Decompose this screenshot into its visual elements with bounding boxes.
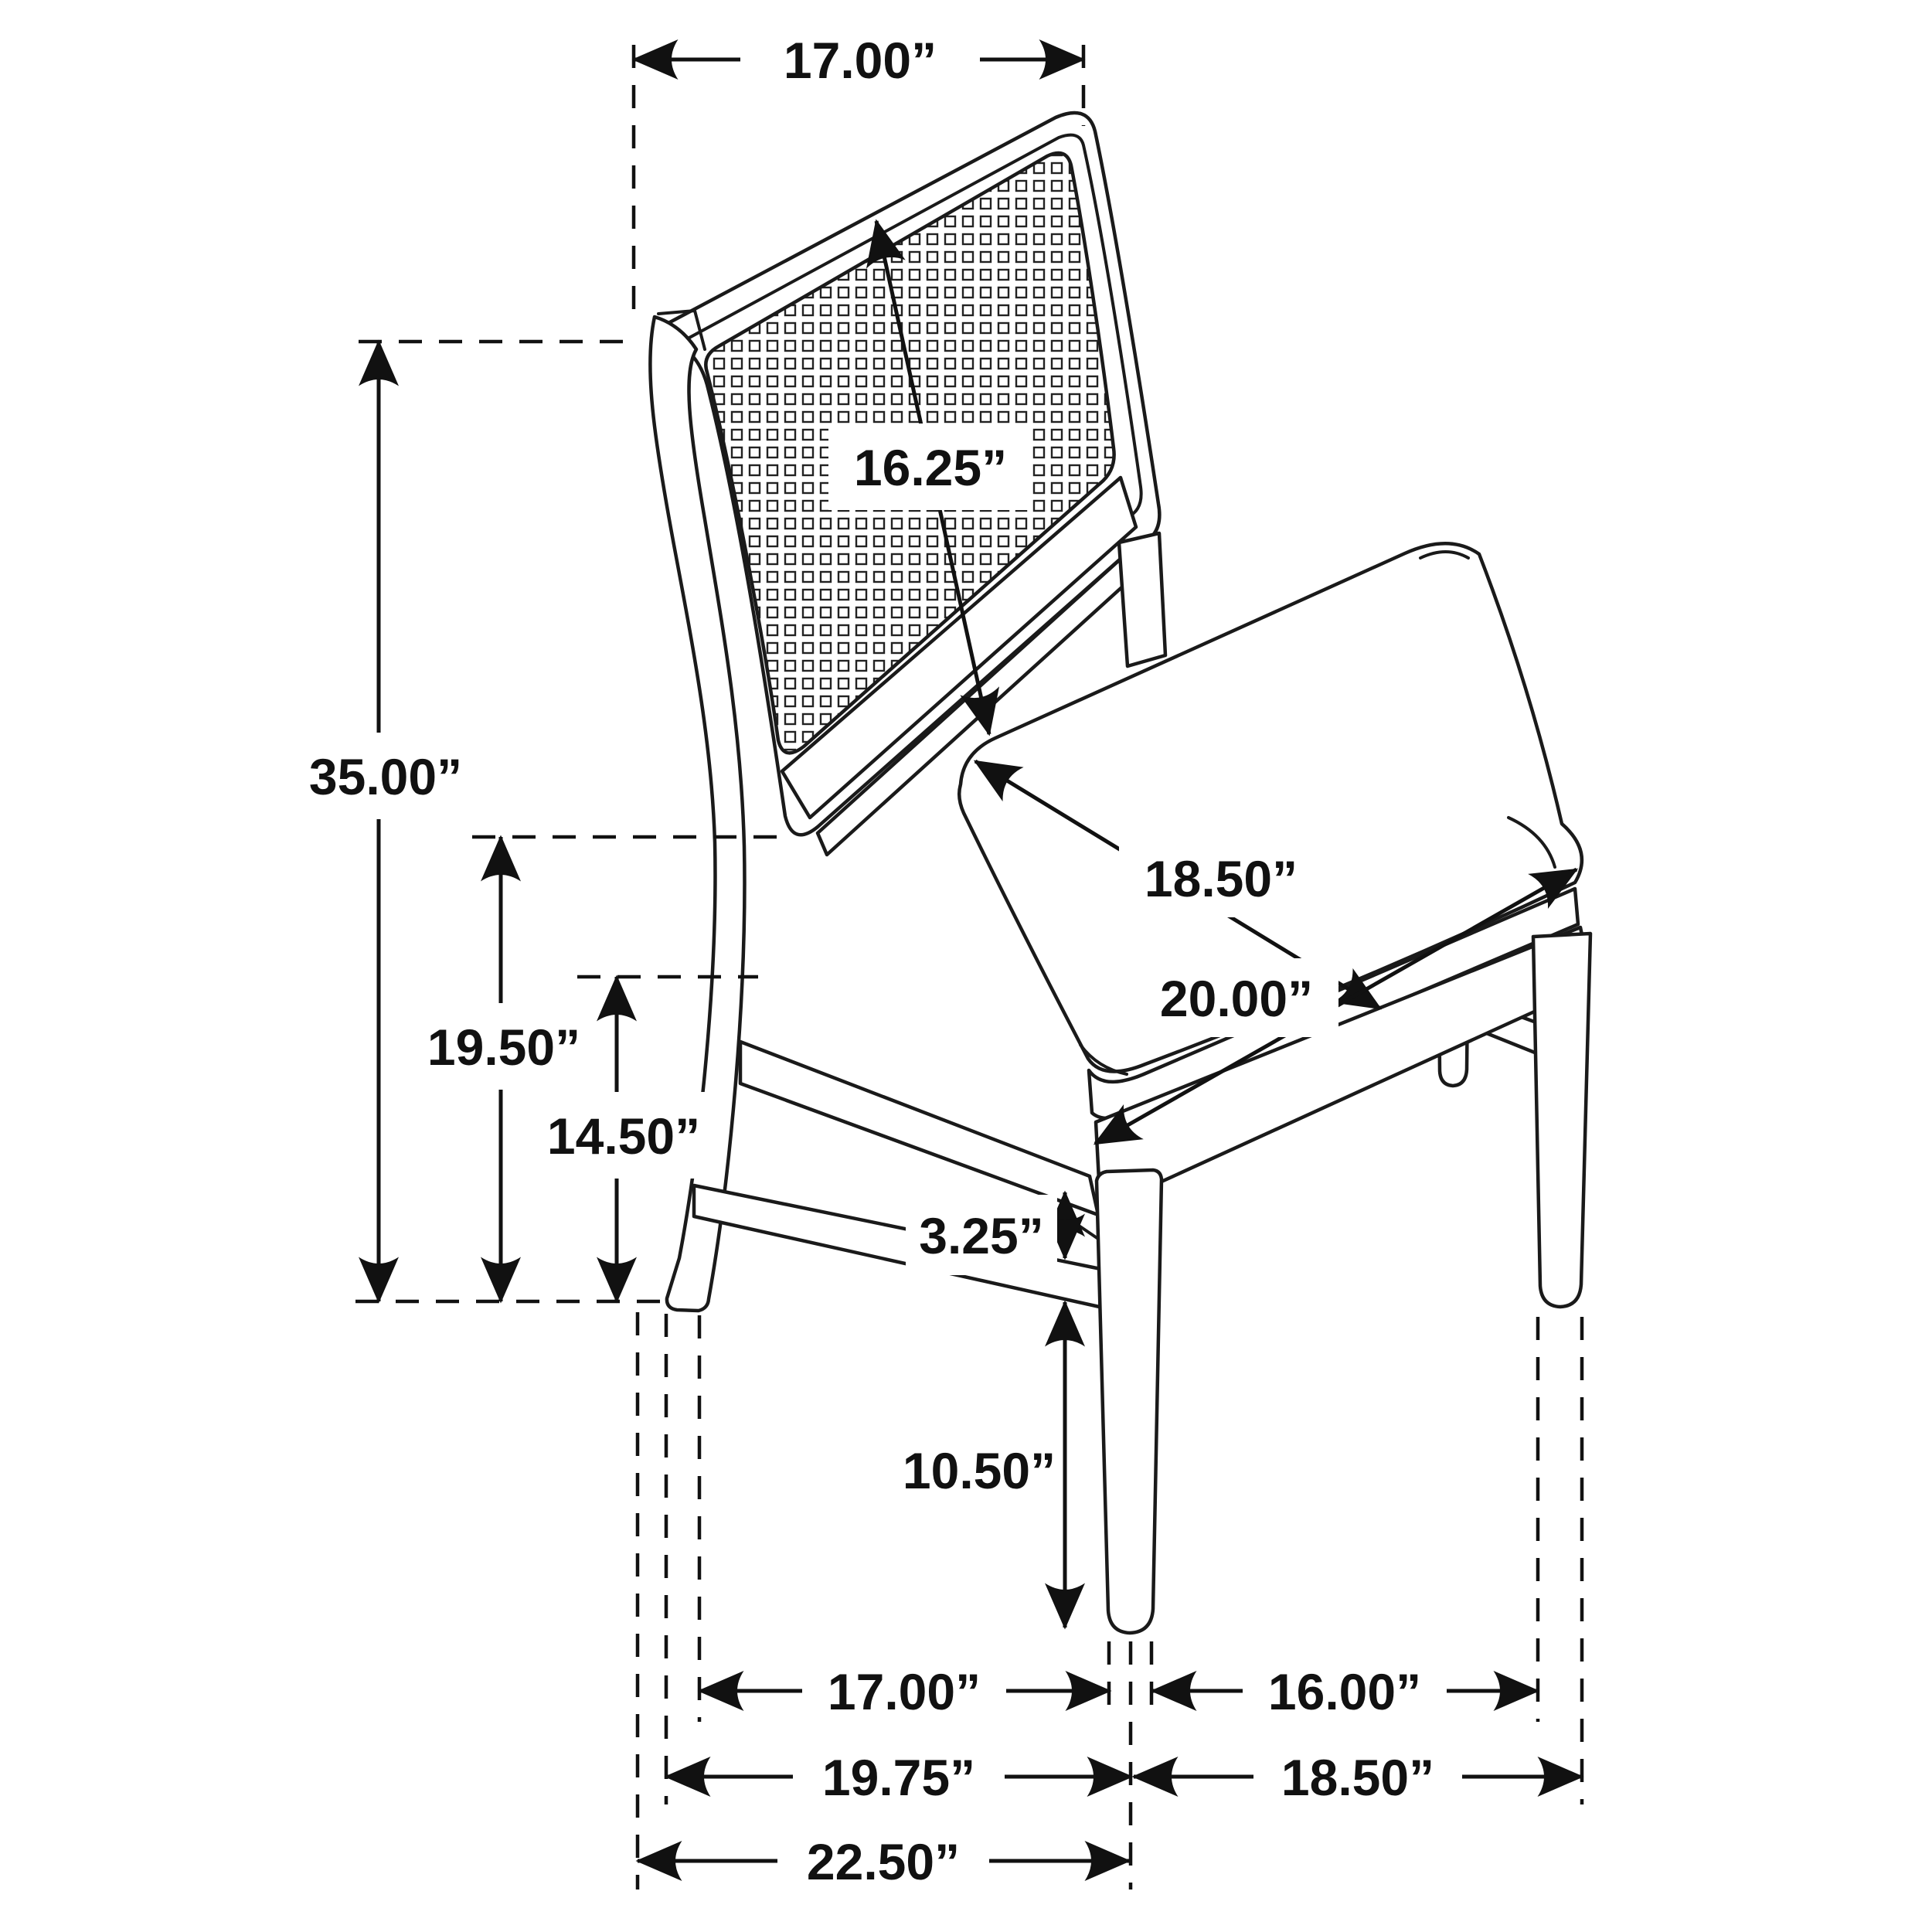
dim-label-apron-height: 14.50” (547, 1107, 700, 1165)
front-right-leg (1533, 934, 1590, 1307)
dim-label-bottom-17: 17.00” (828, 1663, 981, 1720)
dim-label-bottom-2250: 22.50” (807, 1833, 960, 1890)
dim-seat-depth: 18.50” (1119, 838, 1323, 917)
dim-back-panel-height: 16.25” (828, 423, 1032, 510)
dim-seat-width: 20.00” (1134, 958, 1338, 1037)
left-apron (740, 1042, 1098, 1215)
chair-dimension-drawing: 17.00” 35.00” 16.25” 19.50” 14.50” 18.50… (0, 0, 1932, 1932)
dim-bottom-17: 17.00” (802, 1652, 1006, 1730)
dim-label-bottom-1975: 19.75” (822, 1749, 975, 1806)
front-left-leg (1097, 1170, 1162, 1633)
dim-apron-height: 14.50” (535, 1092, 713, 1179)
dim-label-seat-width: 20.00” (1160, 970, 1313, 1027)
dim-label-overall-height: 35.00” (309, 748, 462, 805)
dim-label-bottom-16: 16.00” (1268, 1663, 1421, 1720)
dim-seat-height: 19.50” (417, 1003, 590, 1090)
dim-stretcher-gap: 3.25” (906, 1195, 1057, 1275)
dim-bottom-1850: 18.50” (1253, 1738, 1462, 1815)
dim-label-bottom-1850: 18.50” (1281, 1749, 1434, 1806)
dim-label-floor-clearance: 10.50” (903, 1442, 1056, 1499)
dim-floor-clearance: 10.50” (898, 1430, 1060, 1510)
dim-label-stretcher-gap: 3.25” (919, 1207, 1043, 1264)
dim-label-back-panel-height: 16.25” (854, 439, 1007, 496)
dimension-diagram: 17.00” 35.00” 16.25” 19.50” 14.50” 18.50… (0, 0, 1932, 1932)
dim-bottom-1975: 19.75” (793, 1738, 1005, 1815)
dim-bottom-16: 16.00” (1243, 1652, 1447, 1730)
dim-label-top-back-width: 17.00” (784, 32, 937, 89)
right-stile-lower (1119, 533, 1165, 666)
dim-label-seat-height: 19.50” (427, 1019, 580, 1076)
dim-top-back-width: 17.00” (740, 20, 980, 99)
dim-label-seat-depth: 18.50” (1145, 850, 1298, 907)
dim-overall-height: 35.00” (298, 733, 474, 819)
dim-bottom-2250: 22.50” (777, 1822, 989, 1900)
